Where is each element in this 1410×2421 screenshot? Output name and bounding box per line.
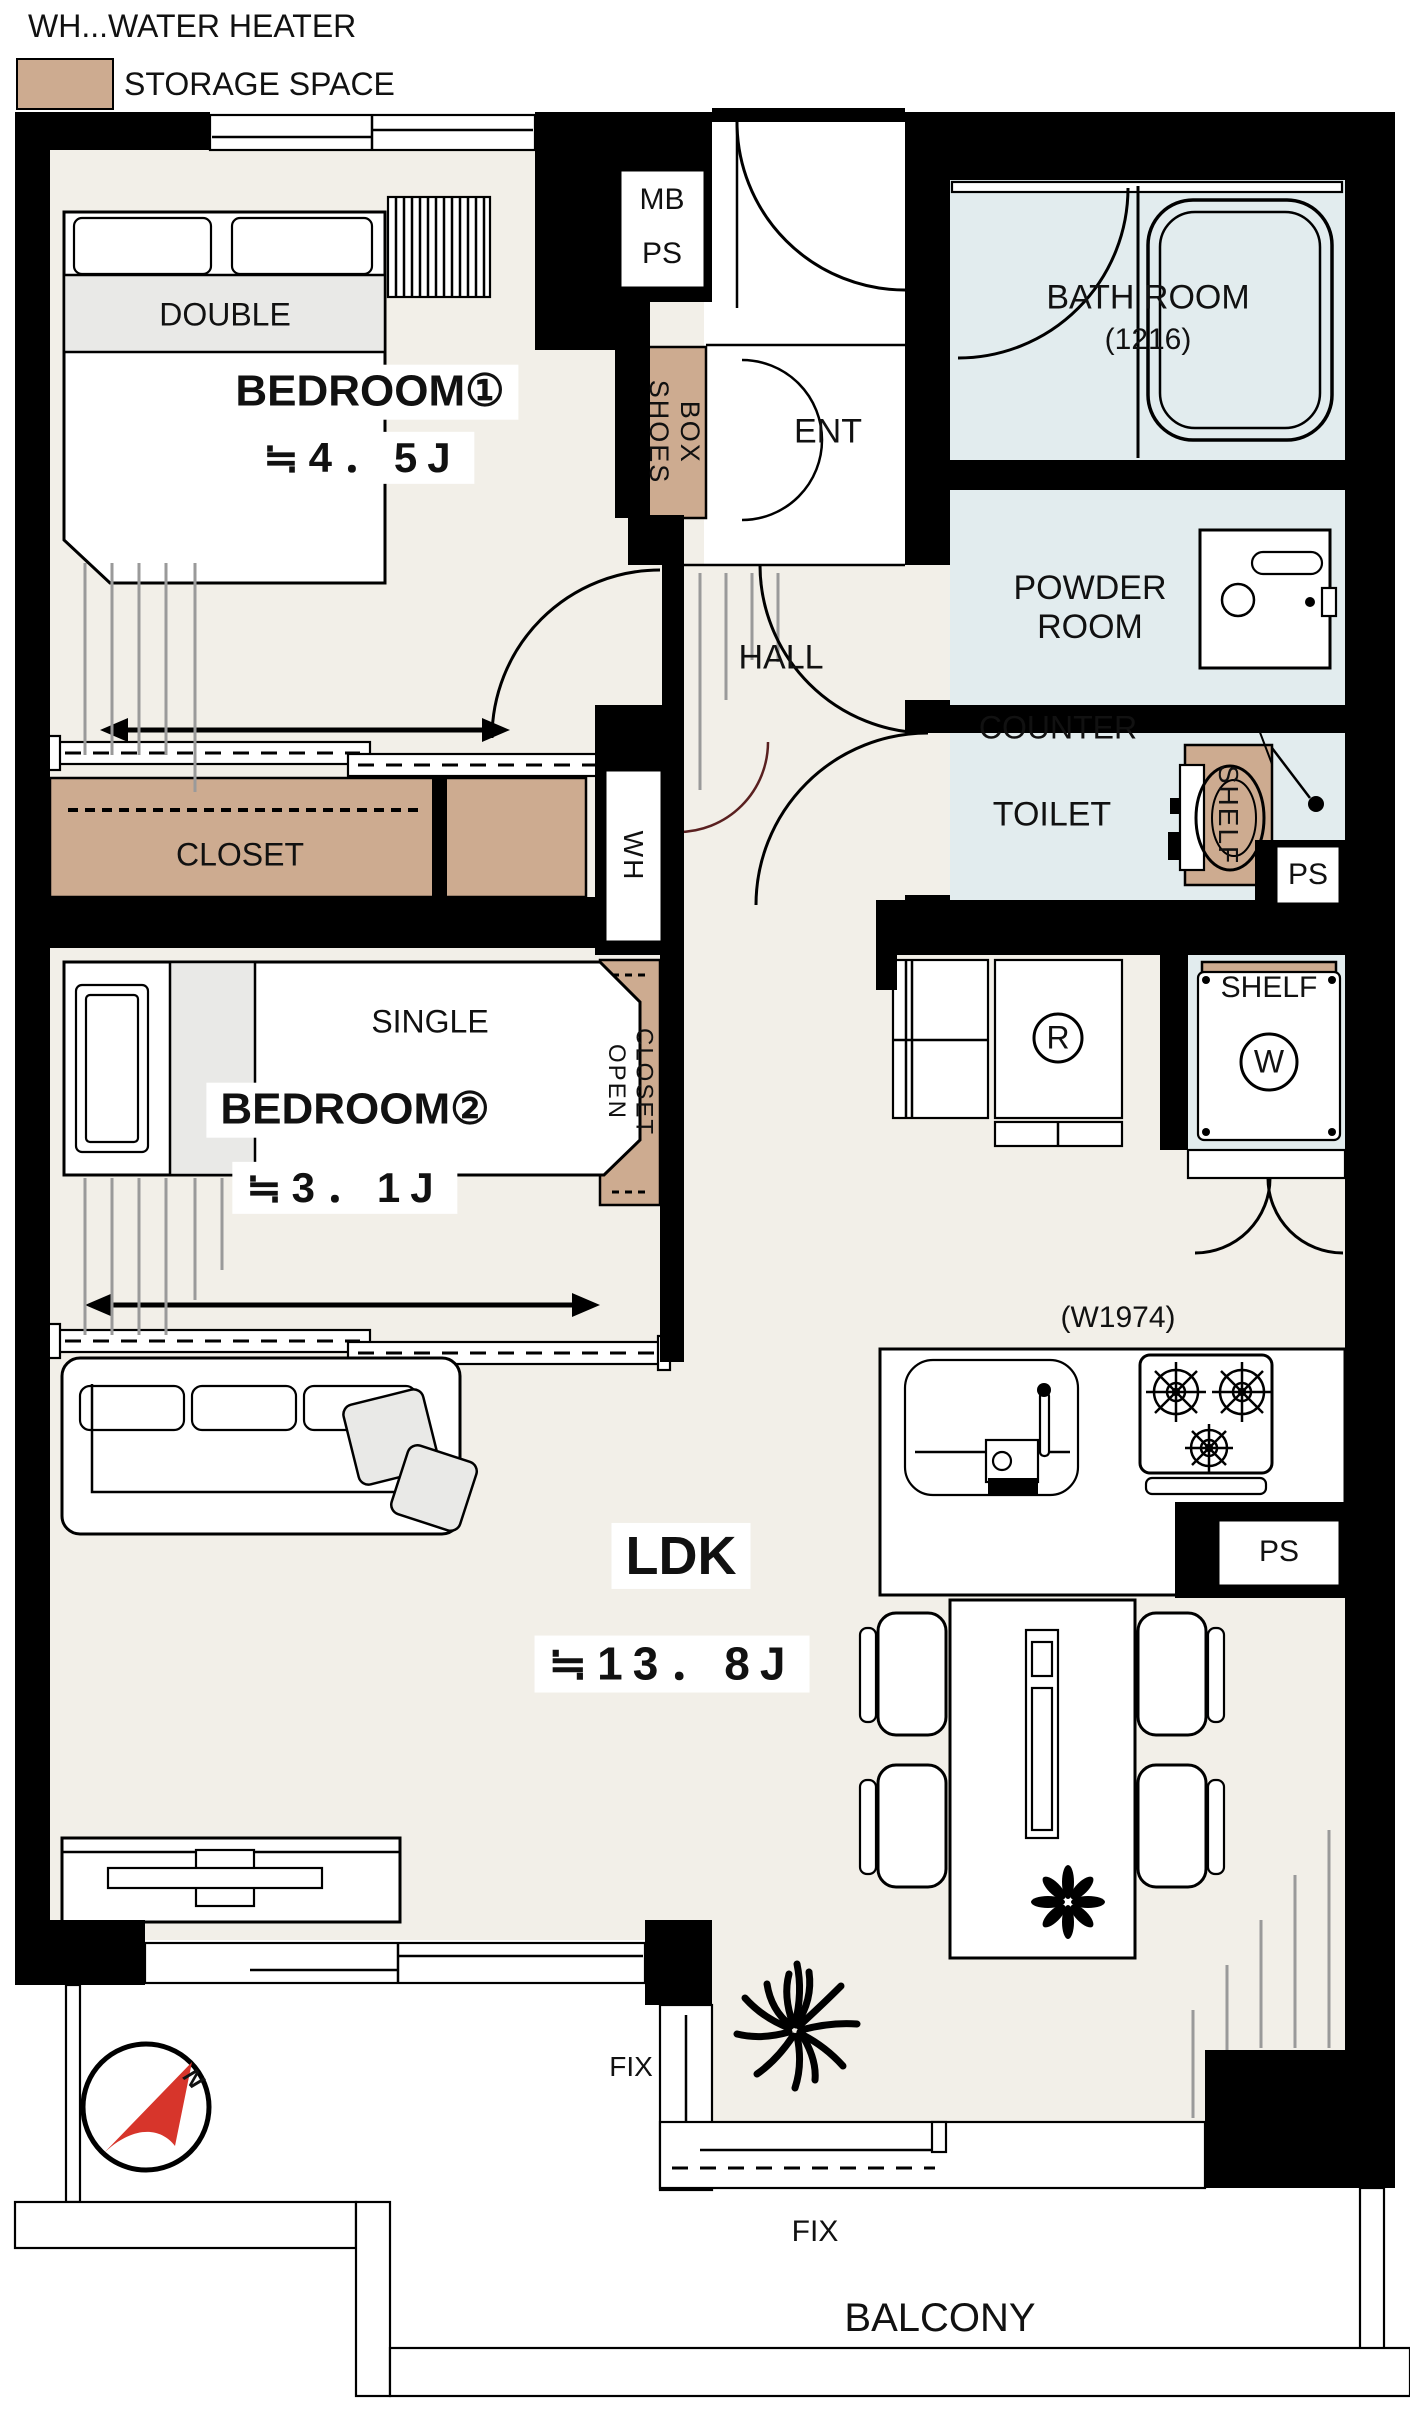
bedroom2-label: BEDROOM②: [206, 1083, 503, 1138]
balcony-rail-right: [1360, 2188, 1384, 2350]
balcony-label: BALCONY: [844, 2295, 1035, 2341]
ldk-label: LDK: [612, 1523, 751, 1589]
bathroom-size: (1216): [1105, 323, 1192, 358]
shelf-label-toilet: SHELF: [1212, 765, 1244, 865]
hall-label: HALL: [738, 638, 823, 677]
ldk-window: [145, 1943, 645, 1983]
ps-label-toilet: PS: [1288, 858, 1328, 893]
bath-sill: [952, 182, 1342, 192]
shelf-label-kitchen: SHELF: [1221, 971, 1318, 1006]
pillow-inner: [86, 995, 138, 1142]
bedroom1-label: BEDROOM①: [221, 365, 518, 420]
balcony-divider: [15, 2202, 356, 2248]
wh-label: WH: [617, 831, 649, 882]
single-bed-band: [170, 962, 255, 1175]
balcony-edge: [66, 1985, 80, 2202]
door-knob: [1308, 796, 1324, 812]
pillow: [74, 218, 211, 274]
shoes-box-label: SHOES BOX: [643, 380, 705, 485]
pillow: [232, 218, 372, 274]
floor-plan: WH...WATER HEATER STORAGE SPACE MB PS EN…: [0, 0, 1410, 2421]
closet-area: [50, 778, 586, 897]
legend-storage-space: STORAGE SPACE: [124, 66, 395, 103]
entrance-floor: [704, 150, 905, 565]
counter-label: COUNTER: [979, 710, 1137, 747]
open-closet-label: OPEN CLOSET: [602, 1028, 657, 1136]
bedroom2-size: ≒3．1J: [232, 1162, 457, 1214]
washstand: [1200, 530, 1336, 668]
bedroom1-size: ≒4．5J: [249, 432, 474, 484]
refrigerator-label: R: [1046, 1020, 1069, 1057]
legend-water-heater: WH...WATER HEATER: [28, 8, 356, 45]
stove: [1140, 1355, 1272, 1494]
closet-label: CLOSET: [176, 837, 304, 874]
compass-circle: [83, 2044, 209, 2170]
bathroom-label: BATH ROOM: [1046, 278, 1249, 317]
kitchen-width-label: (W1974): [1060, 1301, 1175, 1336]
laundry-door-track: [1188, 1150, 1345, 1178]
ldk-size: ≒13．8J: [535, 1636, 810, 1693]
ps-label-kitchen: PS: [1259, 1535, 1299, 1570]
tv: [108, 1868, 322, 1888]
powder-room-label: POWDER ROOM: [970, 569, 1210, 647]
entrance-label: ENT: [794, 412, 862, 451]
ps-label-top: PS: [642, 237, 682, 272]
floor-plan-canvas: [0, 0, 1410, 2421]
fix-label-bottom: FIX: [792, 2215, 839, 2250]
double-bed-label: DOUBLE: [159, 297, 291, 334]
balcony-outer-edge: [390, 2348, 1410, 2396]
mb-label: MB: [640, 183, 685, 218]
single-bed: [64, 962, 640, 1175]
fix-label-left: FIX: [609, 2051, 653, 2083]
toilet-label: TOILET: [993, 795, 1111, 834]
compass: [83, 2044, 209, 2170]
bedroom2-furniture: [64, 962, 640, 1175]
washer-label: W: [1254, 1044, 1284, 1081]
legend-storage-swatch: [16, 58, 114, 110]
single-bed-label: SINGLE: [371, 1004, 488, 1041]
